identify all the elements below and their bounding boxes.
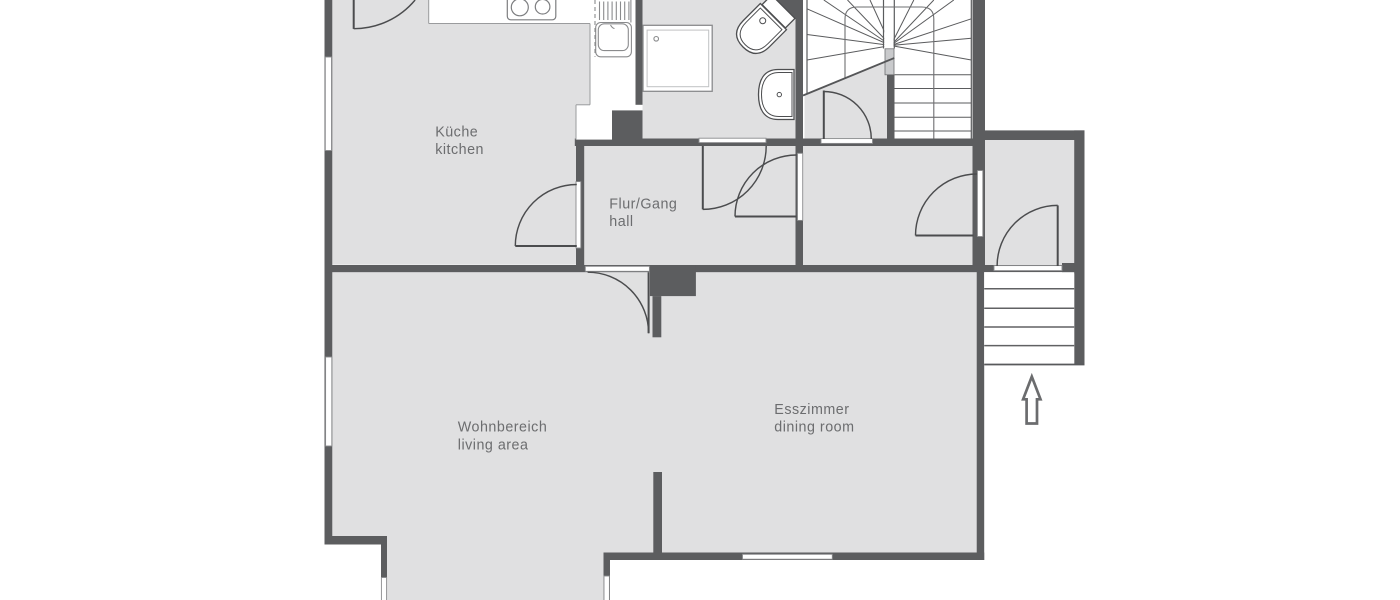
svg-text:kitchen: kitchen	[435, 142, 484, 158]
svg-text:Wohnbereich: Wohnbereich	[458, 420, 547, 436]
svg-text:Küche: Küche	[435, 124, 478, 140]
svg-text:hall: hall	[609, 214, 633, 230]
svg-text:dining room: dining room	[774, 420, 854, 436]
svg-text:Esszimmer: Esszimmer	[774, 402, 849, 418]
svg-text:Flur/Gang: Flur/Gang	[609, 196, 677, 212]
svg-text:living area: living area	[458, 437, 529, 453]
